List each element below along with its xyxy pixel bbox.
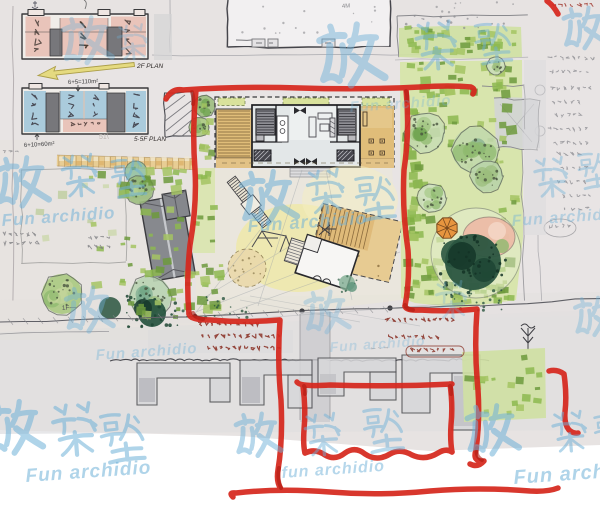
svg-text:2F PLAN: 2F PLAN — [136, 63, 164, 70]
svg-text:5·5F PLAN: 5·5F PLAN — [134, 136, 166, 143]
svg-text:4M: 4M — [342, 3, 351, 10]
svg-text:6+5=110m²: 6+5=110m² — [68, 79, 98, 86]
svg-text:51\: 51\ — [99, 134, 109, 141]
